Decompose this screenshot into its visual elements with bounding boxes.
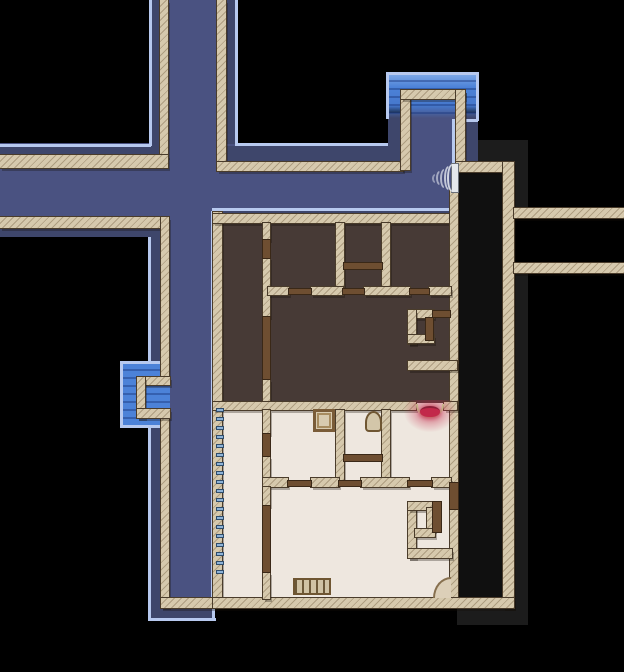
window-tick xyxy=(216,444,224,448)
visibility-line xyxy=(120,425,164,428)
red-alert-marker xyxy=(420,406,440,417)
street-shadow xyxy=(0,146,160,155)
street-shadow xyxy=(226,0,235,144)
window-tick xyxy=(216,489,224,493)
window-tick xyxy=(216,525,224,529)
fog-gray-patch xyxy=(478,140,528,162)
wall-segment xyxy=(456,90,465,164)
street-shadow xyxy=(226,146,401,162)
wall-segment xyxy=(311,287,343,295)
door-wood xyxy=(410,289,429,294)
door-wood xyxy=(426,318,433,340)
street-shadow xyxy=(150,427,160,607)
door-wood xyxy=(263,434,270,456)
wall-segment xyxy=(0,155,168,168)
visibility-line xyxy=(212,607,215,621)
wall-segment xyxy=(456,162,504,172)
door-wood xyxy=(289,289,311,294)
window-tick xyxy=(216,471,224,475)
visibility-line xyxy=(120,361,164,364)
wall-segment xyxy=(137,409,170,418)
visibility-line xyxy=(148,427,151,621)
wall-segment xyxy=(263,478,288,487)
door-wood xyxy=(288,481,311,486)
door-wood xyxy=(450,483,458,509)
window-tick xyxy=(216,480,224,484)
wall-segment xyxy=(213,598,514,608)
wall-segment xyxy=(263,379,270,403)
visibility-line xyxy=(148,618,216,621)
visibility-line xyxy=(212,208,454,211)
fog-gray-patch xyxy=(514,162,528,208)
wall-segment xyxy=(160,0,168,157)
wall-segment xyxy=(415,529,435,537)
door-wood xyxy=(408,481,432,486)
wall-segment xyxy=(503,162,514,608)
window-tick xyxy=(216,543,224,547)
door-wood xyxy=(433,502,441,532)
window-tick xyxy=(216,552,224,556)
wall-segment xyxy=(213,214,458,223)
street-door-white xyxy=(452,164,458,192)
door-wood xyxy=(343,289,364,294)
window-tick xyxy=(216,534,224,538)
window-tick xyxy=(216,462,224,466)
window-tick xyxy=(216,570,224,574)
window-tick xyxy=(216,507,224,511)
wall-segment xyxy=(361,478,409,487)
wall-segment xyxy=(401,90,410,170)
window-tick xyxy=(216,498,224,502)
wall-segment xyxy=(161,217,169,379)
wall-segment xyxy=(382,223,390,289)
visibility-line xyxy=(149,0,152,146)
door-wood xyxy=(433,311,450,317)
visibility-line xyxy=(476,72,479,121)
wall-segment xyxy=(217,0,226,164)
wall-segment xyxy=(268,287,289,295)
visibility-line xyxy=(120,361,123,428)
door-wood xyxy=(344,263,382,269)
visibility-line xyxy=(386,72,389,119)
window-tick xyxy=(216,408,224,412)
window-tick xyxy=(216,417,224,421)
visibility-line xyxy=(0,144,151,147)
street-shadow xyxy=(151,0,160,148)
wall-segment xyxy=(263,487,270,506)
fog-gray-patch xyxy=(514,273,528,607)
wall-segment xyxy=(311,478,339,487)
wall-segment xyxy=(382,410,390,483)
visibility-line xyxy=(148,237,151,363)
door-wood xyxy=(263,506,270,572)
wall-segment xyxy=(432,478,451,487)
street-shadow xyxy=(150,237,160,362)
wall-segment xyxy=(263,410,270,434)
window-tick xyxy=(216,516,224,520)
wall-segment xyxy=(408,361,457,370)
bench-object xyxy=(293,578,331,595)
window-tick xyxy=(216,561,224,565)
wall-segment xyxy=(450,190,458,483)
urn-object xyxy=(365,411,382,432)
wall-segment xyxy=(217,162,403,171)
wall-segment xyxy=(0,217,163,228)
street-shadow xyxy=(388,113,401,162)
wall-segment xyxy=(336,223,344,289)
door-wood xyxy=(344,455,382,461)
wall-segment xyxy=(336,410,344,483)
wall-segment xyxy=(263,572,270,599)
map-viewport[interactable] xyxy=(0,0,624,672)
door-wood xyxy=(339,481,361,486)
window-tick xyxy=(216,453,224,457)
visibility-line xyxy=(452,121,455,168)
wall-segment xyxy=(514,208,624,218)
wall-segment xyxy=(161,598,217,608)
street-shadow xyxy=(0,228,163,237)
window-tick xyxy=(216,426,224,430)
visibility-line xyxy=(235,143,388,146)
wall-segment xyxy=(161,415,169,607)
unlit-room xyxy=(458,170,503,599)
wall-segment xyxy=(514,263,624,273)
visibility-line xyxy=(235,0,238,144)
door-wood xyxy=(263,317,270,379)
window-tick xyxy=(216,435,224,439)
visibility-line xyxy=(386,72,479,75)
wall-segment xyxy=(429,287,451,295)
fog-gray-patch xyxy=(457,607,528,625)
door-wood xyxy=(263,240,270,258)
wall-segment xyxy=(408,549,452,558)
crate-object xyxy=(313,409,335,432)
wall-segment xyxy=(364,287,410,295)
wall-segment xyxy=(263,223,270,240)
